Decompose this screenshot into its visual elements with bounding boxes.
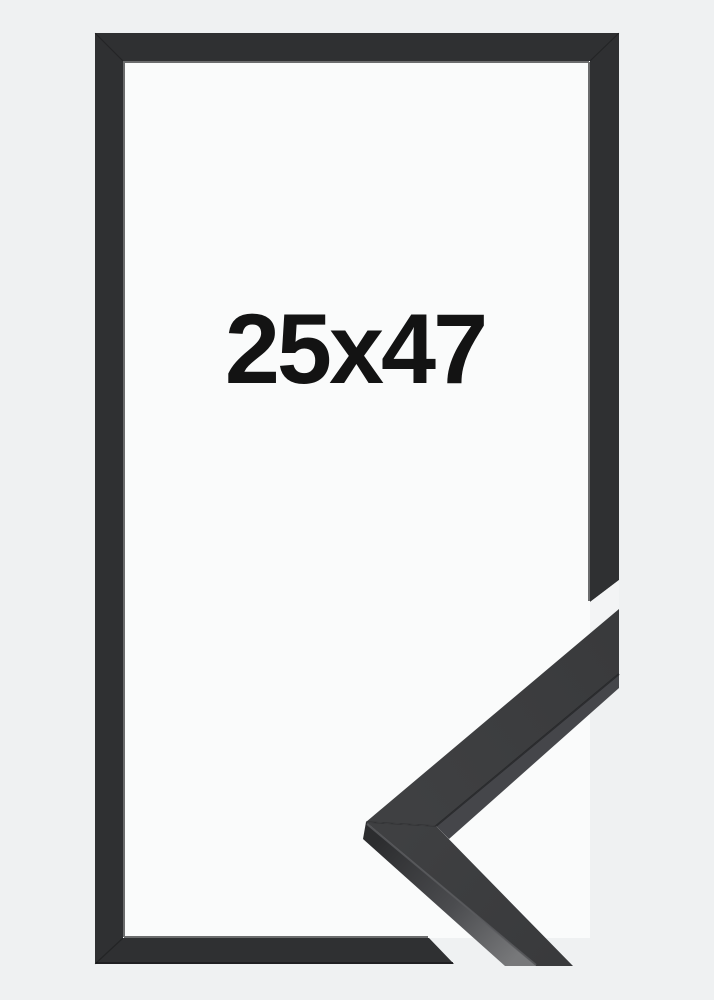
frame-opening — [123, 61, 590, 938]
product-photo: 25x47 — [0, 0, 714, 1000]
product-image: 25x47 — [0, 0, 714, 1000]
size-label: 25x47 — [225, 293, 485, 404]
